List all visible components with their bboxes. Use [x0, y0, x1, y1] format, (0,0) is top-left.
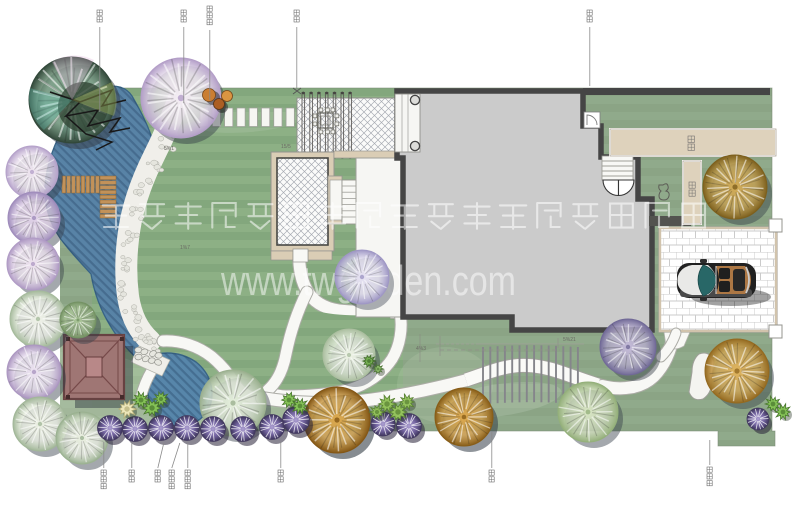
svg-text:5%21: 5%21: [563, 337, 576, 343]
svg-text:5%1: 5%1: [164, 146, 174, 152]
svg-text:15/5: 15/5: [281, 144, 291, 150]
svg-text:1%7: 1%7: [180, 245, 190, 251]
svg-text:4%3: 4%3: [416, 346, 426, 352]
